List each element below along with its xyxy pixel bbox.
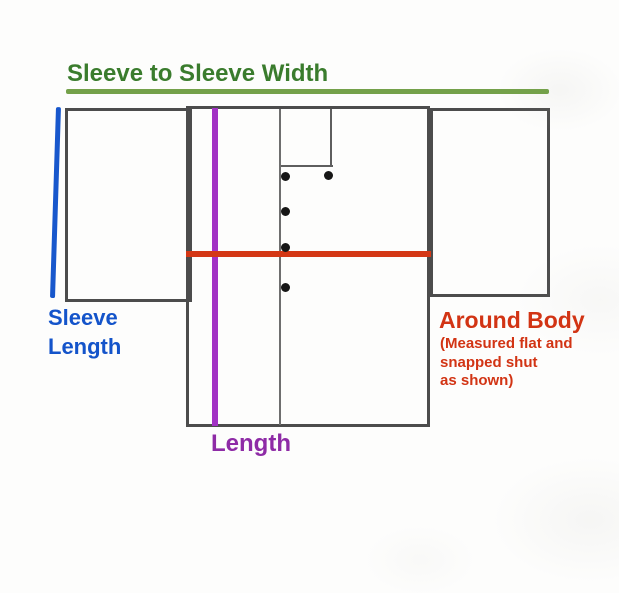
snap-dot [281,172,290,181]
right-sleeve-outline [430,108,550,297]
snap-dot [281,283,290,292]
collar-bottom-seam [279,165,333,167]
sleeve-length-line [50,107,61,298]
collar-right-seam [330,109,332,167]
snap-dot [324,171,333,180]
sleeve-length-label: Sleeve Length [48,303,121,361]
garment-measurement-diagram: Sleeve to Sleeve Width Sleeve Length Len… [0,0,619,593]
left-sleeve-outline [65,108,192,302]
around-body-label: Around Body [439,307,585,334]
sleeve-to-sleeve-width-line [66,89,549,94]
length-label: Length [211,430,291,458]
around-body-note: (Measured flat and snapped shut as shown… [440,335,573,391]
length-line [212,108,218,426]
body-panel-outline [186,106,430,427]
around-body-line [186,251,431,257]
sleeve-to-sleeve-width-label: Sleeve to Sleeve Width [67,60,328,88]
front-placket-seam [279,109,281,425]
snap-dot [281,207,290,216]
snap-dot [281,243,290,252]
